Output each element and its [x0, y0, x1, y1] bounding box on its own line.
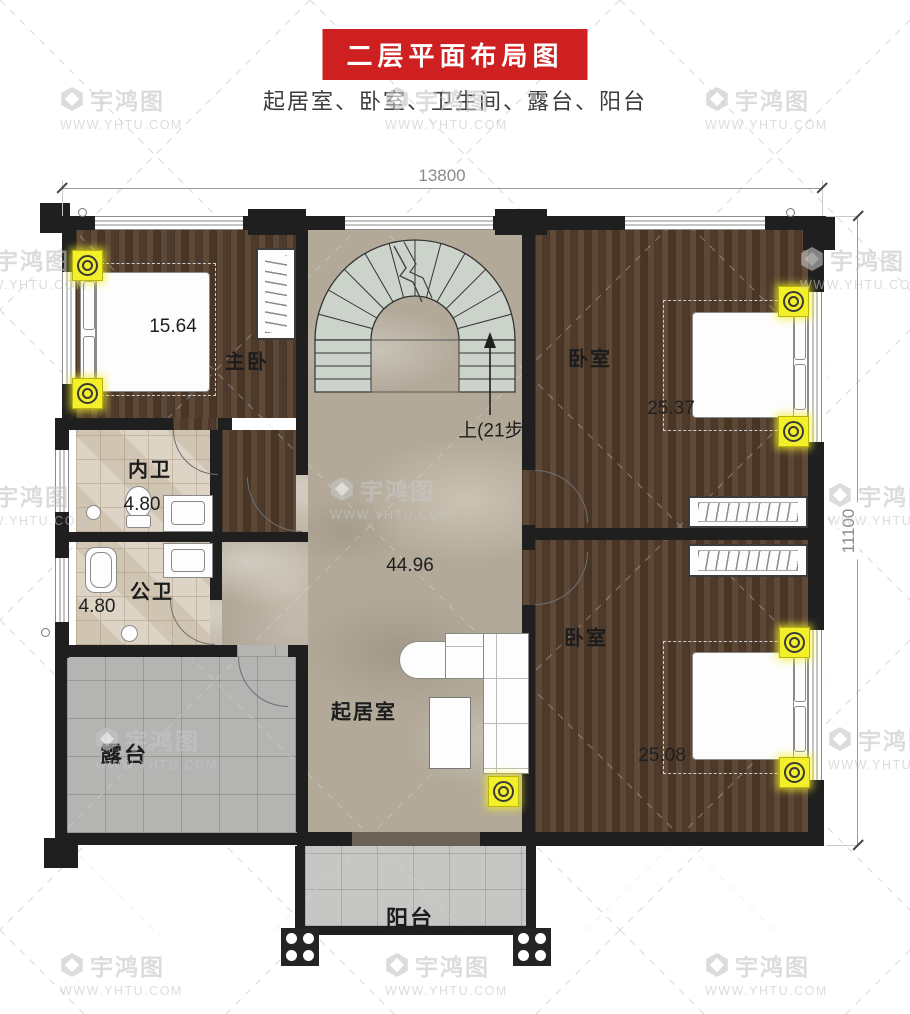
wall — [55, 833, 303, 845]
watermark: 宇鸿图WWW.YHTU.COM — [0, 478, 88, 528]
yhtu-logo-icon — [828, 727, 852, 751]
bed-pillow — [794, 656, 806, 702]
threshold — [237, 645, 288, 657]
wall-pilaster — [40, 203, 70, 233]
bed-mattress — [692, 652, 794, 760]
floor-plan-page: { "title": "二层平面布局图", "subtitle": "起居室、卧… — [0, 0, 910, 1014]
room-area-bedroom-se: 25.08 — [638, 745, 686, 767]
room-label-balcony: 阳台 — [386, 901, 434, 933]
hanger-marks — [265, 255, 287, 332]
room-label-living: 起居室 — [331, 696, 397, 725]
threshold — [173, 418, 218, 430]
window — [625, 216, 765, 230]
wall-pilaster — [44, 838, 78, 868]
shower-sprayer — [86, 505, 101, 520]
spotlight — [779, 757, 810, 788]
window — [808, 292, 824, 442]
wall — [296, 216, 308, 475]
watermark: 宇鸿图WWW.YHTU.COM — [828, 722, 910, 772]
balcony-column — [513, 928, 551, 966]
sofa-chaise — [399, 641, 449, 679]
window — [345, 216, 493, 230]
bed-pillow — [794, 706, 806, 752]
watermark: 宇鸿图WWW.YHTU.COM — [385, 948, 508, 998]
room-area-bedroom-ne: 25.37 — [647, 398, 695, 420]
toilet-tank — [126, 515, 151, 528]
hall-extension-floor — [222, 542, 308, 645]
threshold — [522, 550, 535, 605]
yhtu-logo-icon — [705, 953, 729, 977]
window — [55, 450, 69, 512]
watermark: 宇鸿图WWW.YHTU.COM — [60, 948, 183, 998]
wall — [55, 645, 237, 657]
hanger-marks — [698, 502, 798, 522]
floor-drain — [121, 625, 138, 642]
extension-line — [826, 216, 858, 217]
room-label-bedroom-ne: 卧室 — [568, 343, 612, 372]
balcony-column — [281, 928, 319, 966]
window — [808, 630, 824, 780]
room-label-bedroom-se: 卧室 — [564, 622, 608, 651]
window — [95, 216, 243, 230]
wall-pilaster — [803, 216, 835, 250]
corner-marker — [78, 208, 87, 217]
yhtu-logo-icon — [60, 87, 84, 111]
bed-pillow — [794, 364, 806, 410]
room-area-inner-bath: 4.80 — [124, 494, 161, 516]
wall — [526, 846, 536, 930]
watermark: 宇鸿图WWW.YHTU.COM — [705, 82, 828, 132]
wardrobe — [688, 496, 808, 528]
wardrobe — [256, 248, 296, 340]
coffee-table — [429, 697, 471, 769]
corner-marker — [41, 628, 50, 637]
wall — [55, 648, 67, 845]
window — [55, 558, 69, 622]
room-label-public-bath: 公卫 — [130, 576, 174, 605]
wall — [296, 645, 308, 832]
staircase — [308, 232, 522, 432]
yhtu-logo-icon — [60, 953, 84, 977]
wardrobe — [688, 544, 808, 577]
yhtu-logo-icon — [385, 953, 409, 977]
room-label-inner-bath: 内卫 — [128, 454, 172, 483]
wall-pilaster — [248, 209, 306, 235]
room-area-living: 44.96 — [386, 555, 434, 577]
wall — [535, 528, 808, 540]
window — [62, 272, 76, 384]
bed-mattress — [692, 312, 794, 418]
dimension-height-value: 11100 — [839, 503, 859, 560]
spotlight — [779, 627, 810, 658]
hanger-marks — [698, 550, 798, 571]
page-title: 二层平面布局图 — [322, 29, 587, 80]
yhtu-logo-icon — [705, 87, 729, 111]
room-label-master: 主卧 — [225, 346, 269, 375]
wall — [62, 532, 308, 542]
spotlight — [488, 776, 519, 807]
stairs-direction-note: 上(21步) — [458, 416, 530, 443]
subtitle: 起居室、卧室、卫生间、露台、阳台 — [263, 84, 647, 116]
wall — [295, 846, 305, 930]
room-area-public-bath: 4.80 — [79, 596, 116, 618]
watermark: 宇鸿图WWW.YHTU.COM — [705, 948, 828, 998]
corner-marker — [786, 208, 795, 217]
room-label-terrace: 露台 — [100, 737, 148, 769]
wall — [522, 525, 535, 550]
wall — [62, 418, 173, 430]
dimension-line — [62, 188, 822, 189]
bed-pillow — [83, 281, 95, 330]
sink-basin — [171, 501, 205, 525]
watermark: 宇鸿图WWW.YHTU.COM — [60, 82, 183, 132]
sink-basin — [171, 549, 205, 572]
bed-pillow — [794, 314, 806, 360]
threshold — [522, 470, 535, 525]
spotlight — [72, 378, 103, 409]
spotlight — [72, 250, 103, 281]
spotlight — [778, 416, 809, 447]
extension-line — [826, 845, 858, 846]
dimension-width-value: 13800 — [412, 166, 471, 186]
bathtub-inner — [90, 552, 112, 588]
balcony-doorway-threshold — [352, 832, 480, 846]
sofa-side — [483, 633, 529, 774]
room-area-master: 15.64 — [149, 316, 197, 338]
spotlight — [778, 286, 809, 317]
